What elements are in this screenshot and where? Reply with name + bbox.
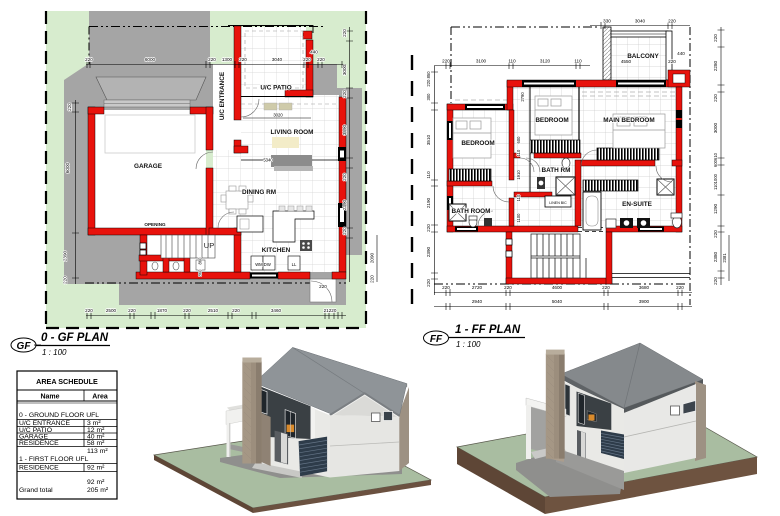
svg-text:Grand total: Grand total xyxy=(19,487,53,494)
svg-text:220: 220 xyxy=(319,284,327,289)
svg-text:220: 220 xyxy=(504,285,512,290)
svg-text:4600: 4600 xyxy=(552,285,563,290)
svg-text:BEDROOM: BEDROOM xyxy=(535,117,568,124)
svg-text:2190: 2190 xyxy=(426,197,431,208)
svg-text:92 m²: 92 m² xyxy=(87,465,105,472)
svg-text:113 m²: 113 m² xyxy=(87,448,108,455)
svg-text:220: 220 xyxy=(442,285,450,290)
svg-text:220: 220 xyxy=(342,173,347,181)
svg-text:220: 220 xyxy=(183,308,191,313)
svg-text:OPENING: OPENING xyxy=(144,222,166,227)
svg-text:3890: 3890 xyxy=(342,124,347,135)
svg-text:220: 220 xyxy=(63,276,68,284)
svg-text:220: 220 xyxy=(239,57,247,62)
svg-text:3460: 3460 xyxy=(271,308,282,313)
svg-text:220: 220 xyxy=(668,19,676,24)
svg-text:440: 440 xyxy=(310,50,318,55)
svg-text:3000: 3000 xyxy=(713,122,718,133)
svg-text:BEDROOM: BEDROOM xyxy=(461,140,494,147)
svg-text:2280: 2280 xyxy=(713,60,718,71)
svg-text:3000: 3000 xyxy=(342,64,347,75)
svg-text:MAIN BEDROOM: MAIN BEDROOM xyxy=(603,117,654,124)
svg-text:U/C PATIO: U/C PATIO xyxy=(260,85,291,92)
svg-text:2390: 2390 xyxy=(63,250,68,261)
svg-text:3020: 3020 xyxy=(273,113,283,118)
svg-text:FF: FF xyxy=(430,334,443,345)
svg-text:3680: 3680 xyxy=(639,285,650,290)
svg-text:2720: 2720 xyxy=(472,285,483,290)
svg-text:220: 220 xyxy=(303,57,311,62)
svg-text:2380: 2380 xyxy=(713,251,718,262)
svg-text:600610: 600610 xyxy=(713,152,718,167)
svg-text:92 m²: 92 m² xyxy=(87,479,105,486)
svg-text:5040: 5040 xyxy=(552,299,563,304)
svg-text:0 - GF PLAN: 0 - GF PLAN xyxy=(41,332,109,344)
svg-text:1910: 1910 xyxy=(516,170,521,180)
svg-text:1300: 1300 xyxy=(222,57,233,62)
svg-text:KITCHEN: KITCHEN xyxy=(262,247,291,254)
svg-text:2381: 2381 xyxy=(722,253,727,263)
svg-text:330: 330 xyxy=(603,19,611,24)
svg-text:220: 220 xyxy=(713,34,718,42)
svg-text:4550: 4550 xyxy=(621,59,632,64)
svg-text:220: 220 xyxy=(713,230,718,238)
svg-text:RESIDENCE: RESIDENCE xyxy=(19,440,59,447)
svg-text:2390: 2390 xyxy=(426,246,431,257)
svg-text:110: 110 xyxy=(516,194,521,201)
svg-text:AREA SCHEDULE: AREA SCHEDULE xyxy=(36,377,98,386)
svg-text:LL: LL xyxy=(292,262,297,267)
svg-text:220: 220 xyxy=(67,103,72,111)
svg-text:U/C ENTRANCE: U/C ENTRANCE xyxy=(219,71,226,120)
svg-text:21220: 21220 xyxy=(324,308,337,313)
svg-text:220: 220 xyxy=(442,59,450,64)
svg-text:1101000: 1101000 xyxy=(713,173,718,190)
svg-text:U/C ENTRANCE: U/C ENTRANCE xyxy=(19,420,70,427)
svg-text:2940: 2940 xyxy=(472,299,483,304)
svg-text:110: 110 xyxy=(574,59,582,64)
svg-text:220: 220 xyxy=(602,285,610,290)
svg-text:0 - GROUND FLOOR UFL: 0 - GROUND FLOOR UFL xyxy=(19,412,99,419)
svg-text:UP: UP xyxy=(204,241,214,250)
svg-text:6000: 6000 xyxy=(145,57,156,62)
svg-text:110: 110 xyxy=(508,59,516,64)
svg-text:1 - FF PLAN: 1 - FF PLAN xyxy=(455,324,521,336)
svg-text:Name: Name xyxy=(40,394,59,401)
svg-text:220: 220 xyxy=(676,285,684,290)
svg-text:220: 220 xyxy=(85,308,93,313)
svg-text:860: 860 xyxy=(198,269,203,277)
svg-text:3120: 3120 xyxy=(540,59,551,64)
svg-text:220: 220 xyxy=(342,227,347,235)
svg-text:DINING RM: DINING RM xyxy=(242,189,276,196)
svg-text:860: 860 xyxy=(198,257,203,265)
svg-text:1100: 1100 xyxy=(516,213,521,223)
svg-text:220: 220 xyxy=(317,57,325,62)
svg-text:220: 220 xyxy=(370,275,375,283)
svg-text:110: 110 xyxy=(426,171,431,179)
svg-text:220: 220 xyxy=(426,279,431,287)
svg-text:220 850: 220 850 xyxy=(426,71,431,87)
svg-text:EN-SUITE: EN-SUITE xyxy=(622,201,653,208)
svg-text:1 - FIRST FLOOR UFL: 1 - FIRST FLOOR UFL xyxy=(19,456,89,463)
svg-text:Area: Area xyxy=(92,394,108,401)
svg-text:220: 220 xyxy=(342,90,347,98)
svg-text:LIVING ROOM: LIVING ROOM xyxy=(271,129,314,136)
svg-text:1290: 1290 xyxy=(713,203,718,214)
svg-text:GF: GF xyxy=(17,341,32,352)
svg-text:WM DW: WM DW xyxy=(255,262,271,267)
svg-text:3040: 3040 xyxy=(635,19,646,24)
svg-text:3040: 3040 xyxy=(272,57,283,62)
svg-text:300: 300 xyxy=(426,93,431,101)
svg-text:440: 440 xyxy=(677,51,685,56)
svg-text:3510: 3510 xyxy=(426,134,431,145)
svg-text:6000: 6000 xyxy=(65,162,70,173)
svg-text:1 : 100: 1 : 100 xyxy=(42,348,67,357)
svg-text:58 m²: 58 m² xyxy=(87,440,105,447)
svg-text:GARAGE: GARAGE xyxy=(134,163,163,170)
svg-text:2790: 2790 xyxy=(520,92,525,102)
svg-text:2090: 2090 xyxy=(370,252,375,263)
svg-text:220: 220 xyxy=(342,29,347,37)
svg-text:220: 220 xyxy=(668,59,676,64)
svg-text:BATH ROOM: BATH ROOM xyxy=(452,208,491,215)
svg-text:220: 220 xyxy=(128,308,136,313)
svg-text:600: 600 xyxy=(516,136,521,144)
svg-text:BATH RM: BATH RM xyxy=(542,167,571,174)
svg-text:220: 220 xyxy=(713,277,718,285)
svg-text:220: 220 xyxy=(208,57,216,62)
svg-text:2500: 2500 xyxy=(106,308,117,313)
svg-text:220: 220 xyxy=(85,57,93,62)
svg-text:2390: 2390 xyxy=(342,199,347,210)
svg-text:1870: 1870 xyxy=(157,308,168,313)
svg-text:BALCONY: BALCONY xyxy=(627,53,659,60)
svg-text:3100: 3100 xyxy=(476,59,487,64)
svg-text:LINEN BIC: LINEN BIC xyxy=(549,201,567,205)
svg-text:110: 110 xyxy=(516,149,521,156)
svg-text:3 m²: 3 m² xyxy=(87,420,101,427)
svg-text:RESIDENCE: RESIDENCE xyxy=(19,465,59,472)
svg-text:1 : 100: 1 : 100 xyxy=(456,340,481,349)
svg-text:5340: 5340 xyxy=(263,158,273,163)
svg-text:220: 220 xyxy=(426,224,431,232)
svg-text:3900: 3900 xyxy=(639,299,650,304)
svg-text:220: 220 xyxy=(713,94,718,102)
svg-text:205 m²: 205 m² xyxy=(87,487,109,494)
svg-text:220: 220 xyxy=(232,308,240,313)
svg-text:2510: 2510 xyxy=(208,308,219,313)
